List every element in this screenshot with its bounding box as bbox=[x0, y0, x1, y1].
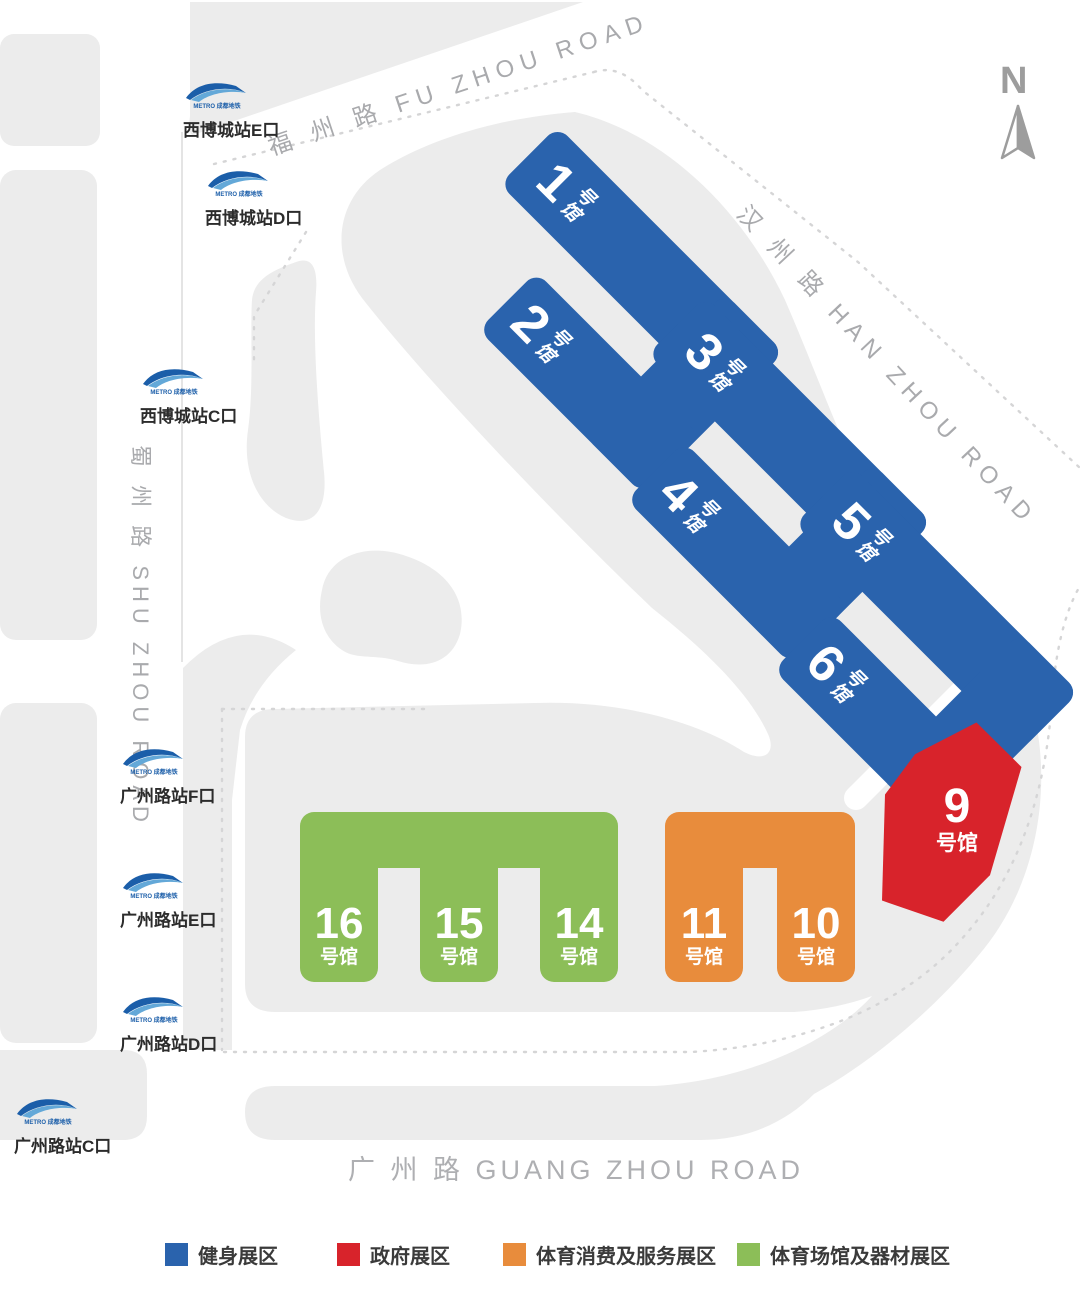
legend-item-fitness: 健身展区 bbox=[165, 1240, 278, 1269]
station-guangzhoulu-e[interactable]: METRO 成都地铁 广州路站E口 bbox=[120, 870, 270, 931]
svg-text:METRO 成都地铁: METRO 成都地铁 bbox=[130, 768, 177, 776]
legend: 健身展区 政府展区 体育消费及服务展区 体育场馆及器材展区 bbox=[0, 1230, 1080, 1276]
city-block bbox=[0, 703, 97, 1043]
svg-text:METRO 成都地铁: METRO 成都地铁 bbox=[130, 1016, 177, 1024]
hall-10[interactable]: 10号馆 bbox=[777, 840, 855, 982]
legend-swatch-green bbox=[737, 1243, 760, 1266]
hall-unit-11-10[interactable]: 11号馆 10号馆 bbox=[665, 812, 855, 982]
station-xibocheng-c[interactable]: METRO 成都地铁 西博城站C口 bbox=[140, 366, 290, 427]
plaza-blob bbox=[320, 551, 462, 665]
svg-text:METRO 成都地铁: METRO 成都地铁 bbox=[215, 190, 262, 198]
station-xibocheng-e[interactable]: METRO 成都地铁 西博城站E口 bbox=[183, 80, 333, 141]
metro-logo-icon: METRO 成都地铁 bbox=[120, 870, 186, 900]
road-label-guangzhou: 广 州 路 GUANG ZHOU ROAD bbox=[348, 1148, 804, 1187]
metro-logo-icon: METRO 成都地铁 bbox=[120, 994, 186, 1024]
svg-text:METRO 成都地铁: METRO 成都地铁 bbox=[193, 102, 240, 110]
hall-16[interactable]: 16号馆 bbox=[300, 840, 378, 982]
svg-text:METRO 成都地铁: METRO 成都地铁 bbox=[24, 1118, 71, 1126]
legend-item-venues: 体育场馆及器材展区 bbox=[737, 1240, 950, 1269]
legend-swatch-red bbox=[337, 1243, 360, 1266]
north-arrow-icon bbox=[992, 102, 1044, 164]
metro-logo-icon: METRO 成都地铁 bbox=[14, 1096, 80, 1126]
city-block bbox=[0, 170, 97, 640]
metro-logo-icon: METRO 成都地铁 bbox=[140, 366, 206, 396]
station-xibocheng-d[interactable]: METRO 成都地铁 西博城站D口 bbox=[205, 168, 355, 229]
city-block bbox=[0, 34, 100, 146]
legend-item-government: 政府展区 bbox=[337, 1240, 450, 1269]
metro-logo-icon: METRO 成都地铁 bbox=[205, 168, 271, 198]
metro-logo-icon: METRO 成都地铁 bbox=[183, 80, 249, 110]
metro-logo-icon: METRO 成都地铁 bbox=[120, 746, 186, 776]
expo-map: 1 号馆 2 号馆 3 号馆 4 号馆 bbox=[0, 0, 1080, 1304]
hall-15[interactable]: 15号馆 bbox=[420, 840, 498, 982]
station-guangzhoulu-f[interactable]: METRO 成都地铁 广州路站F口 bbox=[120, 746, 270, 807]
svg-text:METRO 成都地铁: METRO 成都地铁 bbox=[130, 892, 177, 900]
hall-unit-16-15-14[interactable]: 16号馆 15号馆 14号馆 bbox=[300, 812, 618, 982]
hall-9-suffix: 号馆 bbox=[936, 831, 978, 857]
legend-swatch-orange bbox=[503, 1243, 526, 1266]
station-guangzhoulu-c[interactable]: METRO 成都地铁 广州路站C口 bbox=[14, 1096, 164, 1157]
legend-item-consumption: 体育消费及服务展区 bbox=[503, 1240, 716, 1269]
station-guangzhoulu-d[interactable]: METRO 成都地铁 广州路站D口 bbox=[120, 994, 270, 1055]
hall-14[interactable]: 14号馆 bbox=[540, 840, 618, 982]
hall-11[interactable]: 11号馆 bbox=[665, 840, 743, 982]
legend-swatch-blue bbox=[165, 1243, 188, 1266]
svg-text:METRO 成都地铁: METRO 成都地铁 bbox=[150, 388, 197, 396]
north-label: N bbox=[1000, 60, 1027, 103]
hall-9-number: 9 bbox=[944, 783, 971, 831]
